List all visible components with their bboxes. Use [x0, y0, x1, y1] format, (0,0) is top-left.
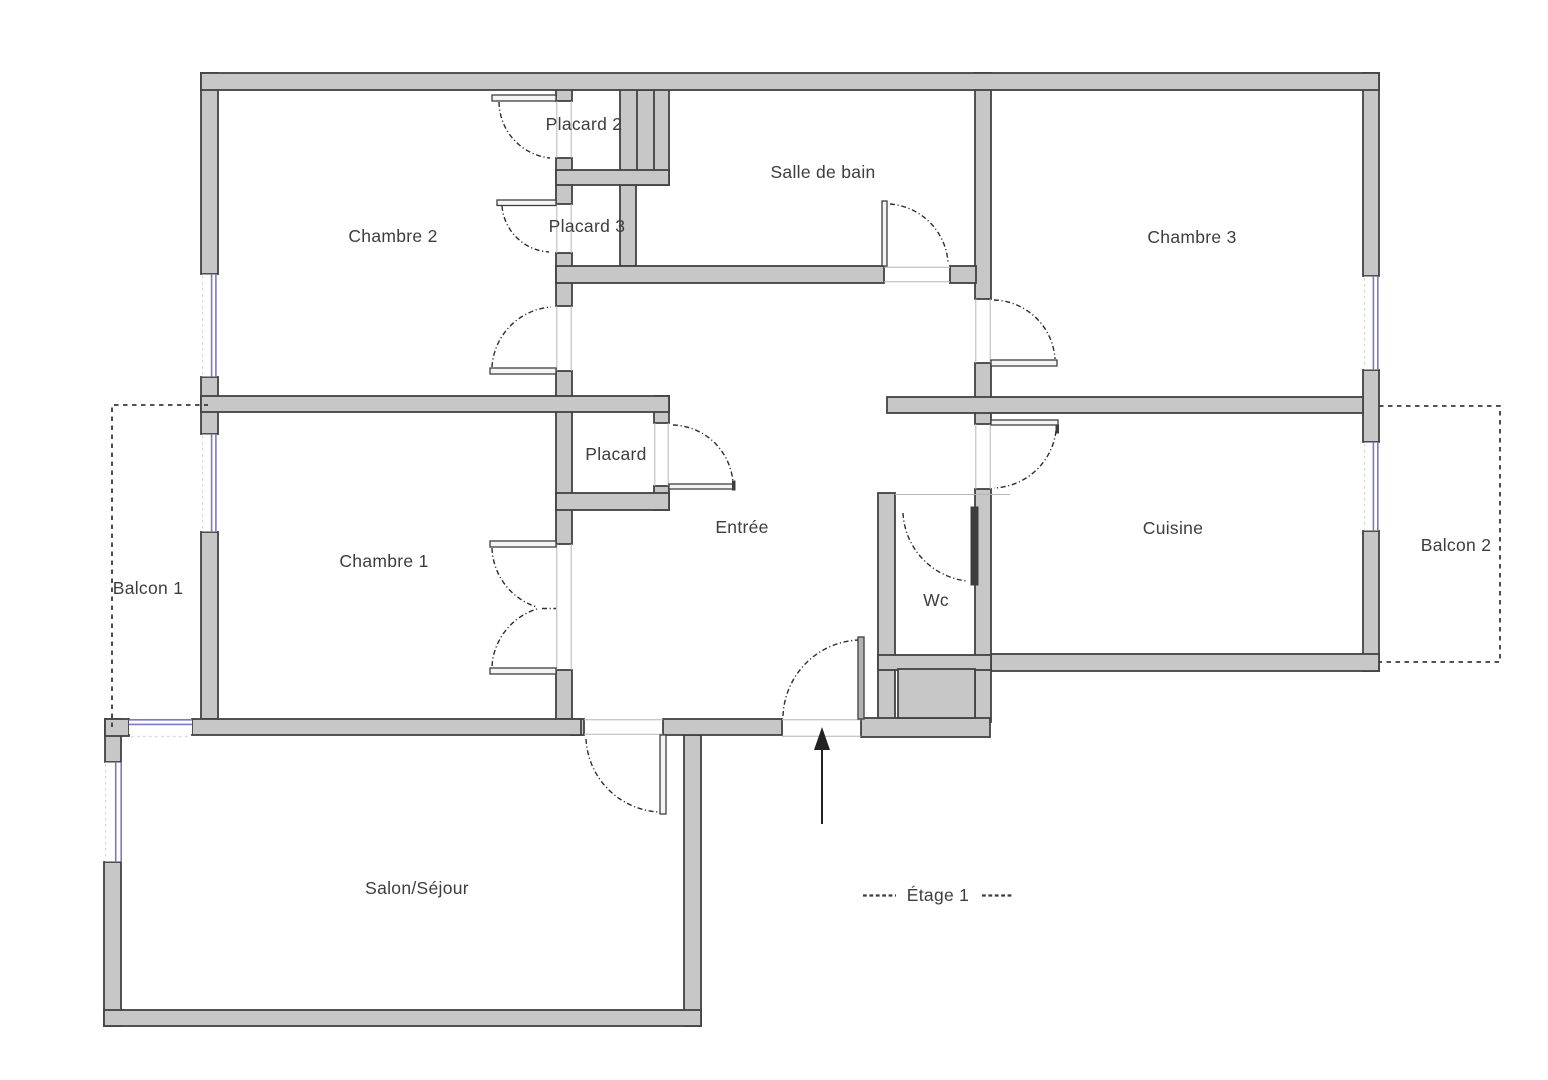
svg-text:Entrée: Entrée — [715, 517, 768, 537]
svg-text:Wc: Wc — [923, 590, 949, 610]
svg-text:Placard 3: Placard 3 — [549, 216, 626, 236]
svg-text:Chambre 3: Chambre 3 — [1147, 227, 1236, 247]
svg-text:Chambre 1: Chambre 1 — [339, 551, 428, 571]
svg-text:Placard 2: Placard 2 — [546, 114, 623, 134]
svg-text:Balcon 1: Balcon 1 — [113, 578, 184, 598]
svg-text:Chambre 2: Chambre 2 — [348, 226, 437, 246]
svg-text:Placard: Placard — [585, 444, 646, 464]
svg-text:Cuisine: Cuisine — [1143, 518, 1203, 538]
svg-text:Salon/Séjour: Salon/Séjour — [365, 878, 469, 898]
svg-text:Balcon 2: Balcon 2 — [1421, 535, 1492, 555]
svg-text:Salle de bain: Salle de bain — [770, 162, 875, 182]
svg-text:Étage 1: Étage 1 — [907, 885, 969, 905]
